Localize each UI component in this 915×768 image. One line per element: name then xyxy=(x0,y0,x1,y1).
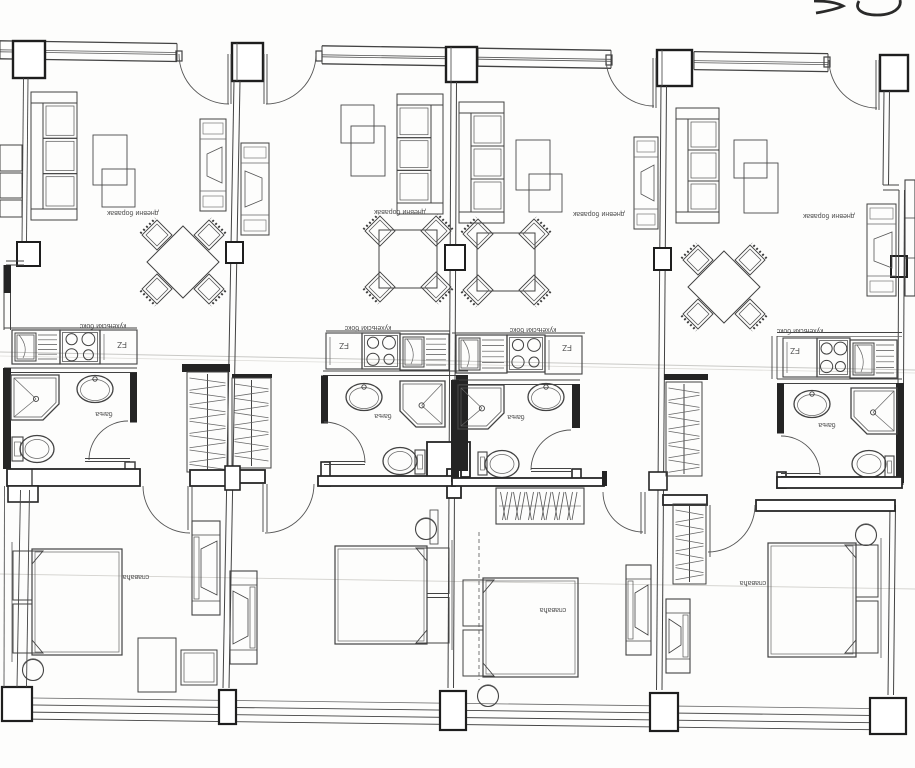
svg-text:кухењски бокс: кухењски бокс xyxy=(509,326,556,334)
svg-text:дневни боравак: дневни боравак xyxy=(106,209,159,217)
svg-text:бања: бања xyxy=(374,412,391,420)
svg-text:бања: бања xyxy=(818,421,835,429)
svg-text:спаваћа: спаваћа xyxy=(540,606,567,614)
svg-text:FZ: FZ xyxy=(117,340,127,349)
svg-text:спаваћа: спаваћа xyxy=(740,579,767,587)
svg-text:кухењски бокс: кухењски бокс xyxy=(776,327,823,335)
svg-text:бања: бања xyxy=(95,410,112,418)
svg-text:спаваћа: спаваћа xyxy=(123,573,150,581)
svg-text:FZ: FZ xyxy=(339,341,349,350)
svg-text:FZ: FZ xyxy=(562,343,572,352)
svg-text:дневни боравак: дневни боравак xyxy=(572,210,625,218)
svg-text:кухењски бокс: кухењски бокс xyxy=(79,322,126,330)
svg-text:FZ: FZ xyxy=(790,346,800,355)
svg-text:бања: бања xyxy=(507,413,524,421)
svg-text:дневни боравак: дневни боравак xyxy=(802,212,855,220)
svg-text:кухењски бокс: кухењски бокс xyxy=(344,324,391,332)
svg-text:дневни боравак: дневни боравак xyxy=(373,208,426,216)
